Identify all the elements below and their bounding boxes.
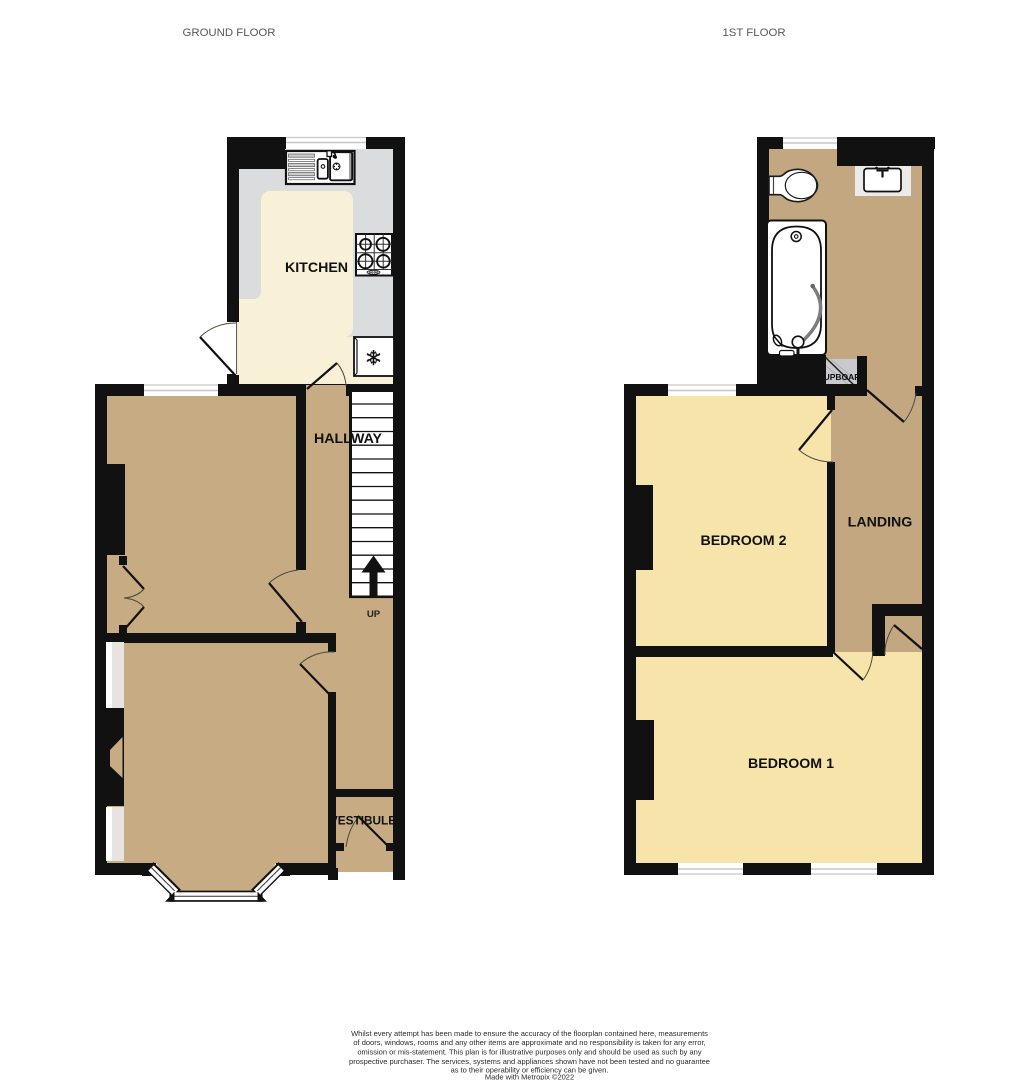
svg-text:omission or mis-statement. Thi: omission or mis-statement. This plan is …: [357, 1048, 701, 1057]
svg-text:BEDROOM 1: BEDROOM 1: [748, 756, 834, 772]
svg-text:HALLWAY: HALLWAY: [314, 431, 383, 447]
svg-text:Made with Metropix ©2022: Made with Metropix ©2022: [485, 1072, 574, 1080]
svg-text:KITCHEN: KITCHEN: [285, 260, 348, 276]
svg-text:VESTIBULE: VESTIBULE: [330, 814, 396, 828]
svg-text:1ST FLOOR: 1ST FLOOR: [722, 27, 785, 39]
svg-text:UP: UP: [367, 609, 381, 620]
svg-text:of doors, windows, rooms and a: of doors, windows, rooms and any other i…: [353, 1038, 705, 1047]
svg-text:GROUND FLOOR: GROUND FLOOR: [182, 27, 275, 39]
svg-text:BEDROOM 2: BEDROOM 2: [701, 533, 787, 549]
svg-text:Whilst every attempt has been: Whilst every attempt has been made to en…: [351, 1029, 708, 1038]
svg-text:LANDING: LANDING: [848, 515, 913, 531]
svg-text:CUPBOARD: CUPBOARD: [817, 372, 866, 382]
